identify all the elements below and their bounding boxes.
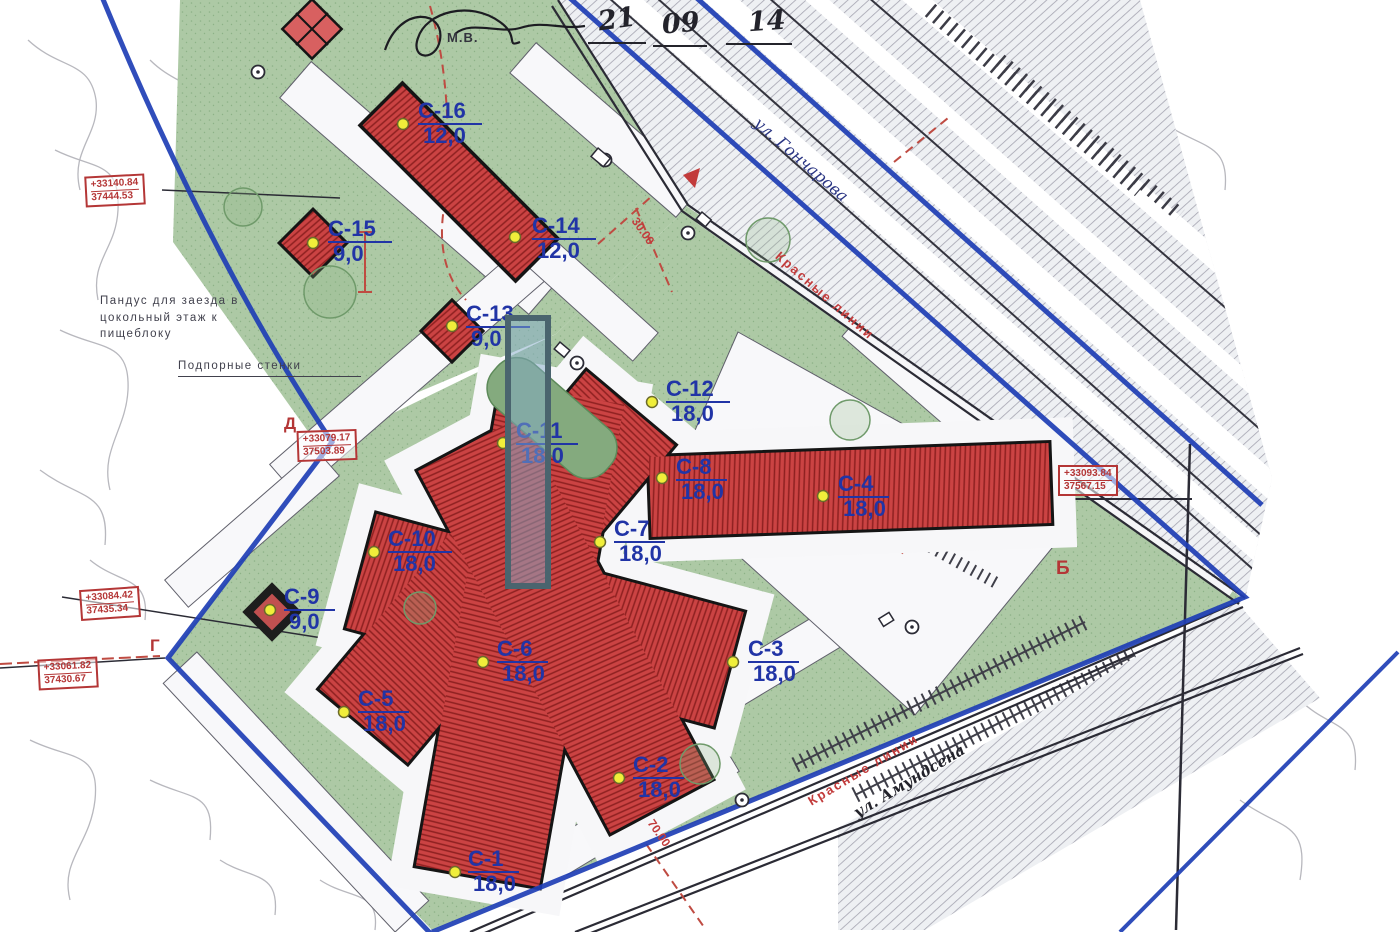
date-underline [588, 42, 646, 44]
corner-letter-b: Б [1056, 558, 1070, 580]
survey-point-label: С-159,0 [328, 218, 392, 266]
survey-point-label: С-418,0 [838, 473, 889, 521]
survey-point-label: С-518,0 [358, 688, 409, 736]
survey-point-label: С-218,0 [633, 754, 684, 802]
survey-point-label: С-1018,0 [388, 528, 452, 576]
date-underline [653, 45, 707, 47]
survey-point-label: С-818,0 [676, 456, 727, 504]
retaining-walls-note: Подпорные стенки [178, 358, 361, 377]
selection-overlay[interactable] [505, 315, 551, 589]
coordinate-box: +33079.1737503.89 [296, 429, 357, 462]
date-day: 21 [596, 2, 638, 38]
corner-letter-d: Д [284, 414, 296, 434]
date-year: 14 [747, 5, 787, 39]
coordinate-box: +33084.4237435.34 [79, 586, 141, 621]
survey-point-label: С-1412,0 [532, 215, 596, 263]
survey-point-label: С-618,0 [497, 638, 548, 686]
ramp-note: Пандус для заезда в цокольный этаж к пищ… [100, 293, 285, 343]
coordinate-box: +33061.8237430.67 [37, 656, 98, 690]
survey-point-label: С-718,0 [614, 518, 665, 566]
survey-point-label: С-1612,0 [418, 100, 482, 148]
date-underline [726, 43, 792, 45]
survey-point-label: С-99,0 [284, 586, 335, 634]
corner-letter-g: Г [150, 636, 160, 656]
survey-point-label: С-1218,0 [666, 378, 730, 426]
date-month: 09 [661, 6, 701, 40]
initials-text: М.В. [447, 30, 478, 45]
coordinate-box: +33093.8437567.15 [1058, 465, 1118, 496]
survey-point-label: С-118,0 [468, 848, 519, 896]
survey-point-label: С-318,0 [748, 638, 799, 686]
plan-canvas: С-118,0 С-218,0 С-318,0 С-418,0 С-518,0 … [0, 0, 1400, 932]
coordinate-box: +33140.8437444.53 [84, 173, 145, 207]
